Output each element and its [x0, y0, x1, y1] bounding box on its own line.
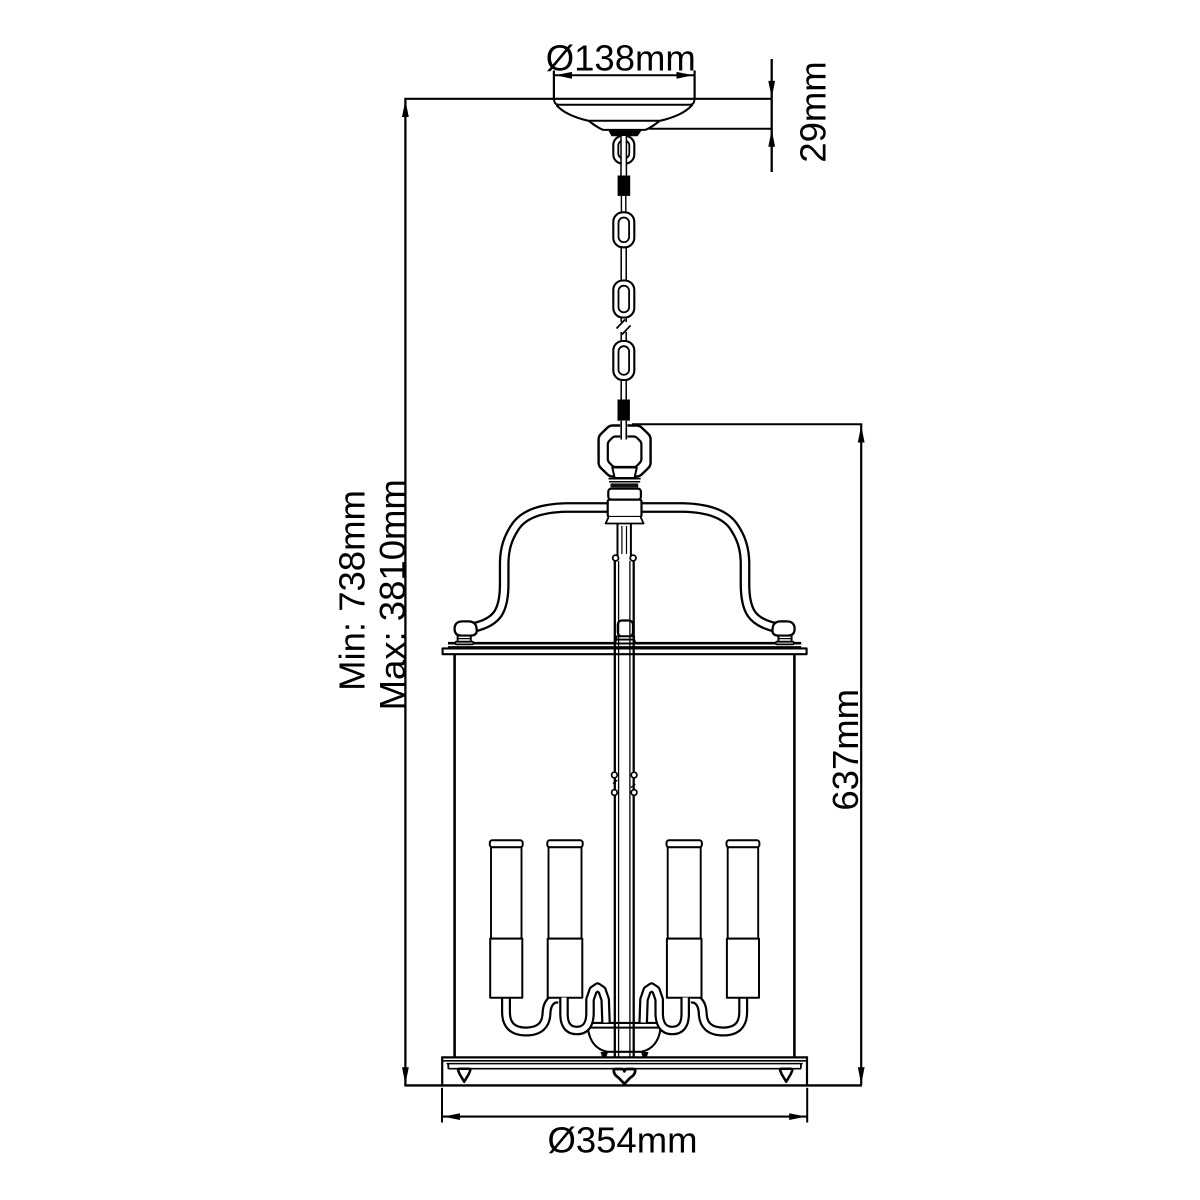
svg-text:Max: 3810mm: Max: 3810mm [372, 479, 413, 710]
svg-text:Ø138mm: Ø138mm [546, 37, 696, 78]
svg-text:Min: 738mm: Min: 738mm [331, 490, 372, 691]
svg-text:637mm: 637mm [825, 689, 866, 811]
svg-text:Ø354mm: Ø354mm [547, 1120, 697, 1161]
svg-text:29mm: 29mm [792, 61, 833, 162]
